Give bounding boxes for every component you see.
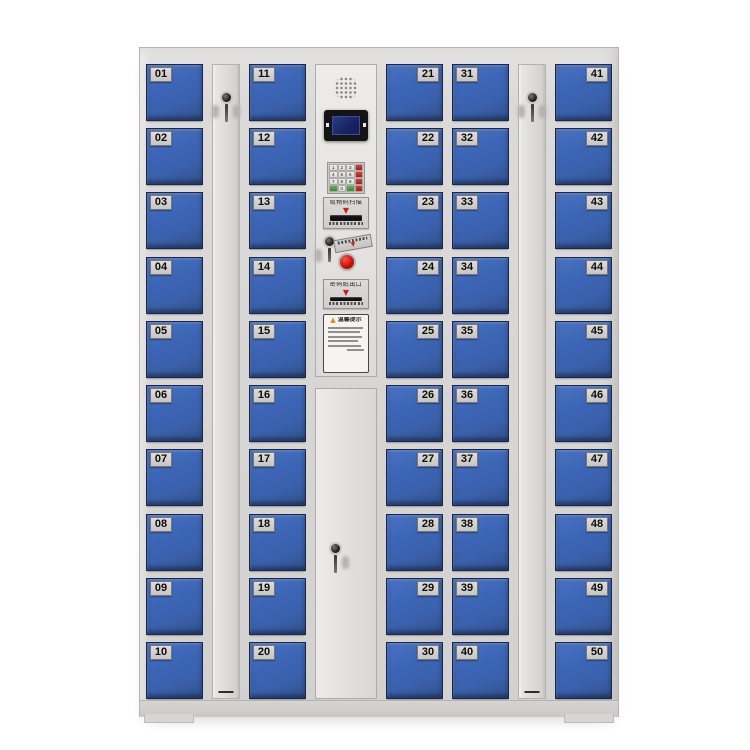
door-number-plate: 15 [253, 324, 275, 339]
locker-door-07[interactable]: 07 [146, 449, 203, 506]
key-fob-icon [315, 249, 322, 262]
door-column-3: 21222324252627282930 [386, 64, 443, 699]
locker-door-02[interactable]: 02 [146, 128, 203, 185]
door-number-plate: 27 [417, 452, 439, 467]
door-number-plate: 08 [150, 517, 172, 532]
door-number-plate: 49 [586, 581, 608, 596]
door-number-plate: 34 [456, 260, 478, 275]
door-number-plate: 06 [150, 388, 172, 403]
locker-door-44[interactable]: 44 [555, 257, 612, 314]
numeric-keypad: 1234567890 [327, 162, 365, 194]
warning-header: ▲ 温馨提示 [327, 317, 365, 324]
door-number-plate: 01 [150, 67, 172, 82]
fine-print [329, 222, 363, 225]
locker-door-22[interactable]: 22 [386, 128, 443, 185]
door-number-plate: 47 [586, 452, 608, 467]
locker-door-10[interactable]: 10 [146, 642, 203, 699]
locker-door-05[interactable]: 05 [146, 321, 203, 378]
door-number-plate: 35 [456, 324, 478, 339]
door-number-plate: 48 [586, 517, 608, 532]
door-number-plate: 05 [150, 324, 172, 339]
locker-door-03[interactable]: 03 [146, 192, 203, 249]
door-number-plate: 10 [150, 645, 172, 660]
locker-door-49[interactable]: 49 [555, 578, 612, 635]
fine-print [328, 327, 363, 329]
door-number-plate: 18 [253, 517, 275, 532]
keyhole-icon[interactable] [325, 237, 334, 246]
door-number-plate: 14 [253, 260, 275, 275]
door-number-plate: 22 [417, 131, 439, 146]
locker-door-39[interactable]: 39 [452, 578, 509, 635]
door-number-plate: 43 [586, 195, 608, 210]
door-number-plate: 33 [456, 195, 478, 210]
keypad-key-7[interactable]: 7 [330, 179, 337, 184]
locker-door-08[interactable]: 08 [146, 514, 203, 571]
locker-door-14[interactable]: 14 [249, 257, 306, 314]
door-number-plate: 26 [417, 388, 439, 403]
base-plinth [140, 700, 618, 717]
barcode-scanner-label: 取物码扫描 ▼ [323, 197, 369, 229]
locker-door-35[interactable]: 35 [452, 321, 509, 378]
locker-door-06[interactable]: 06 [146, 385, 203, 442]
locker-door-24[interactable]: 24 [386, 257, 443, 314]
fine-print [328, 345, 361, 347]
door-number-plate: 45 [586, 324, 608, 339]
warning-title: 温馨提示 [338, 317, 362, 324]
locker-door-38[interactable]: 38 [452, 514, 509, 571]
door-number-plate: 44 [586, 260, 608, 275]
locker-door-47[interactable]: 47 [555, 449, 612, 506]
door-column-4: 31323334353637383940 [452, 64, 509, 699]
door-number-plate: 29 [417, 581, 439, 596]
key-icon [334, 555, 337, 573]
locker-door-33[interactable]: 33 [452, 192, 509, 249]
keypad-key-3[interactable]: 3 [347, 165, 354, 170]
down-arrow-icon: ▼ [326, 289, 366, 296]
locker-door-50[interactable]: 50 [555, 642, 612, 699]
door-column-1: 01020304050607080910 [146, 64, 203, 699]
door-number-plate: 13 [253, 195, 275, 210]
door-number-plate: 12 [253, 131, 275, 146]
control-panel: 1234567890 取物码扫描 ▼ ▼ [315, 64, 377, 377]
door-number-plate: 04 [150, 260, 172, 275]
warning-triangle-icon: ▲ [330, 317, 335, 324]
door-number-plate: 24 [417, 260, 439, 275]
door-number-plate: 21 [417, 67, 439, 82]
door-number-plate: 02 [150, 131, 172, 146]
door-number-plate: 30 [417, 645, 439, 660]
key-fob-icon [233, 105, 240, 118]
keypad-key-1[interactable]: 1 [330, 165, 337, 170]
locker-door-34[interactable]: 34 [452, 257, 509, 314]
door-number-plate: 38 [456, 517, 478, 532]
locker-door-45[interactable]: 45 [555, 321, 612, 378]
key-fob-icon [539, 105, 546, 118]
locker-door-28[interactable]: 28 [386, 514, 443, 571]
door-number-plate: 11 [253, 67, 275, 82]
locker-door-18[interactable]: 18 [249, 514, 306, 571]
locker-door-48[interactable]: 48 [555, 514, 612, 571]
keypad-function-key[interactable] [356, 186, 363, 191]
fine-print [329, 302, 363, 305]
scanner-slot [330, 215, 362, 221]
key-lock-column-right [518, 64, 546, 699]
fine-print [328, 336, 362, 338]
master-lock[interactable] [521, 93, 543, 122]
keypad-key-5[interactable]: 5 [339, 172, 346, 177]
keypad-key-6[interactable]: 6 [347, 172, 354, 177]
locker-columns: 01020304050607080910 1112131415161718192… [146, 64, 612, 699]
door-number-plate: 20 [253, 645, 275, 660]
locker-door-43[interactable]: 43 [555, 192, 612, 249]
key-lock-column-left [212, 64, 240, 699]
service-door-lock[interactable] [324, 544, 346, 573]
locker-door-09[interactable]: 09 [146, 578, 203, 635]
locker-door-12[interactable]: 12 [249, 128, 306, 185]
speaker-grille-icon [334, 76, 358, 100]
door-number-plate: 28 [417, 517, 439, 532]
service-lock-area: ▼ [316, 235, 376, 277]
cabinet-foot [564, 714, 614, 723]
locker-door-13[interactable]: 13 [249, 192, 306, 249]
locker-door-11[interactable]: 11 [249, 64, 306, 121]
vent-slot [219, 691, 234, 693]
door-number-plate: 41 [586, 67, 608, 82]
fine-print [347, 349, 364, 351]
door-column-5: 41424344454647484950 [555, 64, 612, 699]
locker-door-21[interactable]: 21 [386, 64, 443, 121]
key-fob-icon [518, 105, 525, 118]
locker-door-40[interactable]: 40 [452, 642, 509, 699]
locker-door-15[interactable]: 15 [249, 321, 306, 378]
door-number-plate: 25 [417, 324, 439, 339]
door-number-plate: 42 [586, 131, 608, 146]
key-icon [531, 104, 534, 122]
locker-door-25[interactable]: 25 [386, 321, 443, 378]
locker-door-01[interactable]: 01 [146, 64, 203, 121]
locker-cabinet: 01020304050607080910 1112131415161718192… [139, 47, 619, 717]
keypad-key-9[interactable]: 9 [347, 179, 354, 184]
keypad-key-4[interactable]: 4 [330, 172, 337, 177]
locker-door-23[interactable]: 23 [386, 192, 443, 249]
emergency-button[interactable] [340, 255, 354, 269]
service-door[interactable] [315, 388, 377, 699]
locker-door-17[interactable]: 17 [249, 449, 306, 506]
door-number-plate: 39 [456, 581, 478, 596]
locker-door-30[interactable]: 30 [386, 642, 443, 699]
warning-notice-label: ▲ 温馨提示 [323, 314, 369, 373]
keypad-function-key[interactable] [356, 165, 363, 170]
door-number-plate: 09 [150, 581, 172, 596]
locker-door-32[interactable]: 32 [452, 128, 509, 185]
key-fob-icon [212, 105, 219, 118]
door-number-plate: 23 [417, 195, 439, 210]
keyhole-icon[interactable] [331, 544, 340, 553]
locker-door-27[interactable]: 27 [386, 449, 443, 506]
master-lock[interactable] [215, 93, 237, 122]
door-column-2: 11121314151617181920 [249, 64, 306, 699]
keypad-key-0[interactable]: 0 [339, 186, 346, 191]
door-number-plate: 03 [150, 195, 172, 210]
key-icon [225, 104, 228, 122]
door-number-plate: 46 [586, 388, 608, 403]
door-number-plate: 36 [456, 388, 478, 403]
keypad-key-8[interactable]: 8 [339, 179, 346, 184]
door-number-plate: 40 [456, 645, 478, 660]
door-number-plate: 07 [150, 452, 172, 467]
keypad-confirm-key[interactable] [330, 186, 337, 191]
locker-door-31[interactable]: 31 [452, 64, 509, 121]
display-screen [324, 110, 368, 141]
control-column: 1234567890 取物码扫描 ▼ ▼ [315, 64, 377, 699]
door-number-plate: 32 [456, 131, 478, 146]
keypad-key-2[interactable]: 2 [339, 165, 346, 170]
locker-door-29[interactable]: 29 [386, 578, 443, 635]
screen-glass [332, 116, 360, 135]
door-number-plate: 17 [253, 452, 275, 467]
keypad-function-key[interactable] [356, 179, 363, 184]
locker-door-16[interactable]: 16 [249, 385, 306, 442]
vent-slot [525, 691, 540, 693]
keyhole-icon[interactable] [222, 93, 231, 102]
key-fob-icon [342, 556, 349, 569]
locker-door-04[interactable]: 04 [146, 257, 203, 314]
locker-door-42[interactable]: 42 [555, 128, 612, 185]
keyhole-icon[interactable] [528, 93, 537, 102]
door-number-plate: 50 [586, 645, 608, 660]
receipt-slot [330, 297, 362, 301]
door-number-plate: 19 [253, 581, 275, 596]
cabinet-foot [144, 714, 194, 723]
key-icon [328, 248, 331, 262]
keypad-function-key[interactable] [356, 172, 363, 177]
locker-door-46[interactable]: 46 [555, 385, 612, 442]
locker-door-36[interactable]: 36 [452, 385, 509, 442]
locker-door-41[interactable]: 41 [555, 64, 612, 121]
down-arrow-icon: ▼ [326, 207, 366, 214]
fine-print [328, 340, 358, 342]
door-number-plate: 31 [456, 67, 478, 82]
receipt-exit-label: 密码纸出口 ▼ [323, 279, 369, 309]
fine-print [328, 331, 360, 333]
door-number-plate: 16 [253, 388, 275, 403]
locker-door-19[interactable]: 19 [249, 578, 306, 635]
locker-door-20[interactable]: 20 [249, 642, 306, 699]
locker-door-37[interactable]: 37 [452, 449, 509, 506]
keypad-confirm-key[interactable] [347, 186, 354, 191]
door-number-plate: 37 [456, 452, 478, 467]
locker-door-26[interactable]: 26 [386, 385, 443, 442]
